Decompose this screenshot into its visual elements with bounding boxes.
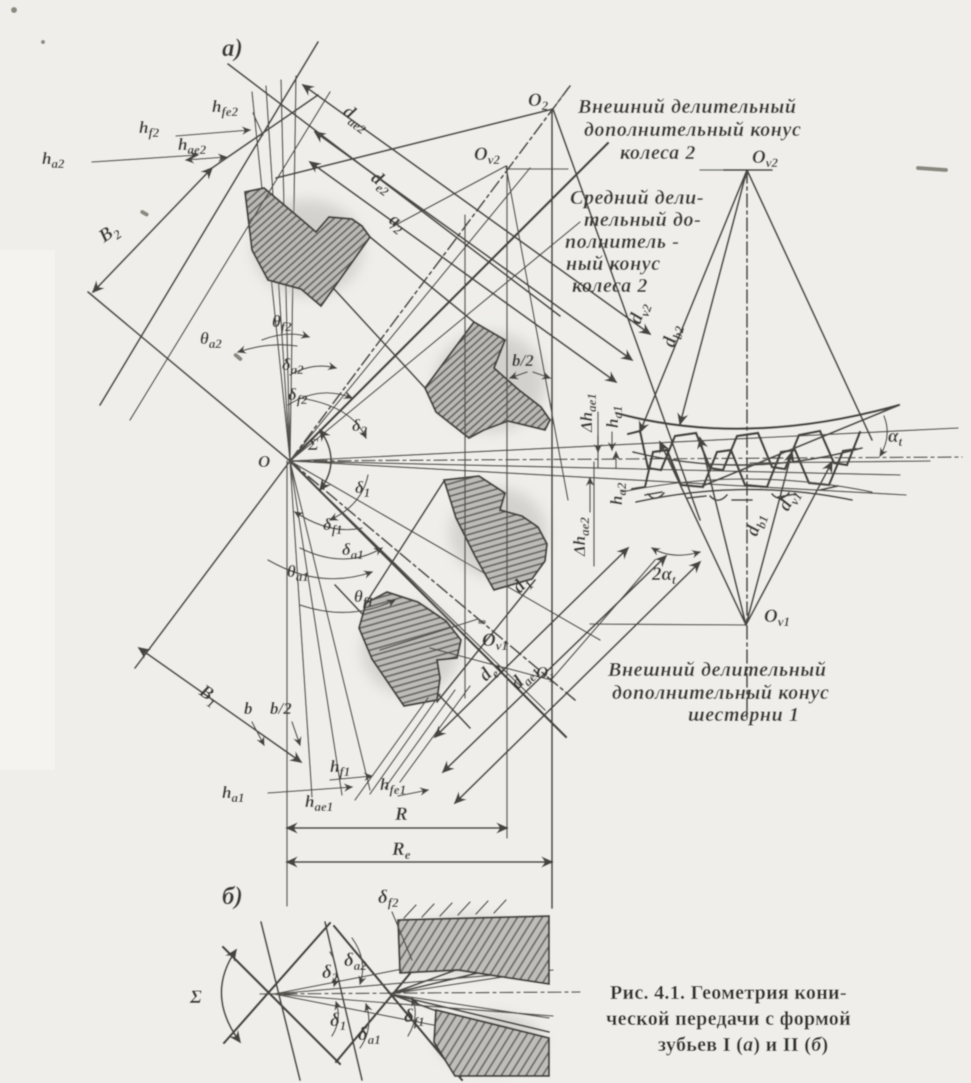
svg-text:дополнительный конус: дополнительный конус [584,119,801,141]
svg-text:Внешний делительный: Внешний делительный [607,659,827,681]
svg-text:полнитель -: полнитель - [565,231,679,253]
svg-text:а): а) [222,35,243,62]
svg-text:колеса 2: колеса 2 [572,275,648,297]
svg-text:б): б) [222,883,243,910]
svg-text:ный конус: ный конус [566,253,661,275]
svg-text:Рис. 4.1. Геометрия кони-: Рис. 4.1. Геометрия кони- [610,982,847,1004]
svg-text:шестерни 1: шестерни 1 [688,704,800,726]
svg-text:Внешний делительный: Внешний делительный [577,96,797,118]
svg-text:колеса 2: колеса 2 [620,142,696,164]
svg-text:О: О [258,452,270,471]
svg-text:b/2: b/2 [512,351,534,370]
svg-text:дополнительный конус: дополнительный конус [612,682,829,704]
svg-text:b/2: b/2 [270,699,292,718]
svg-text:b: b [244,699,253,718]
svg-text:Σ: Σ [307,435,319,454]
svg-text:ческой передачи с формой: ческой передачи с формой [606,1008,851,1030]
svg-text:Средний дели-: Средний дели- [570,187,704,209]
svg-text:тельный до-: тельный до- [584,209,701,231]
svg-text:Σ: Σ [189,987,202,1008]
svg-text:R: R [394,804,408,825]
svg-text:зубьев I (а) и II (б): зубьев I (а) и II (б) [658,1034,828,1056]
